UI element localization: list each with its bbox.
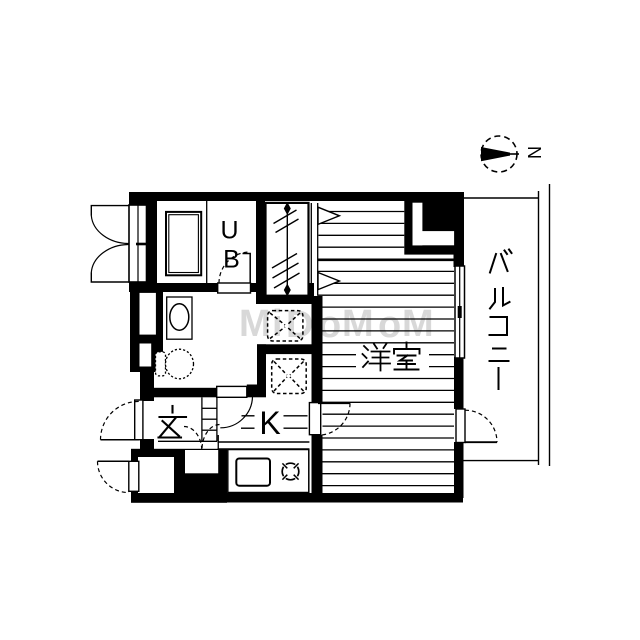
svg-text:B: B <box>223 246 240 274</box>
svg-text:M: M <box>402 303 434 345</box>
svg-text:o: o <box>378 304 401 346</box>
svg-text:K: K <box>259 405 280 441</box>
svg-text:M: M <box>342 303 374 345</box>
svg-text:U: U <box>220 217 238 245</box>
svg-text:N: N <box>524 146 544 159</box>
svg-text:i: i <box>272 303 283 345</box>
svg-text:M: M <box>239 303 271 345</box>
